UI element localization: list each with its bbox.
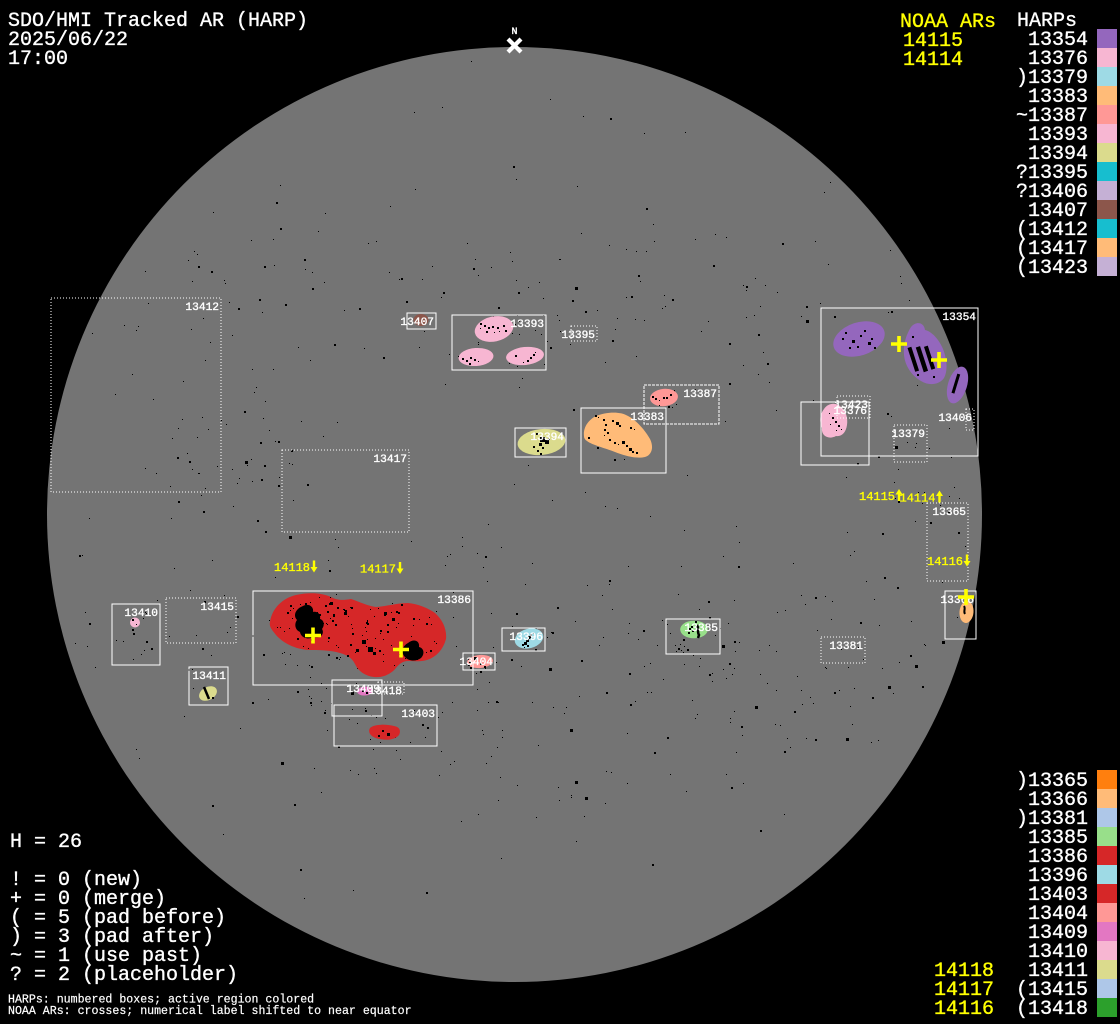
svg-text:13412: 13412 <box>185 302 219 314</box>
svg-text:13410: 13410 <box>124 608 158 620</box>
svg-text:NOAA ARs: crosses; numerical l: NOAA ARs: crosses; numerical label shift… <box>8 1005 412 1018</box>
svg-text:14115: 14115 <box>859 490 895 504</box>
svg-text:14117: 14117 <box>360 563 396 577</box>
svg-text:13365: 13365 <box>932 507 966 519</box>
svg-text:13386: 13386 <box>437 595 471 607</box>
svg-text:14116: 14116 <box>927 555 963 569</box>
svg-text:(13418: (13418 <box>1016 998 1088 1021</box>
svg-text:13407: 13407 <box>400 317 434 329</box>
svg-text:13383: 13383 <box>630 412 664 424</box>
svg-text:14114: 14114 <box>900 492 936 506</box>
svg-text:17:00: 17:00 <box>8 48 68 71</box>
svg-text:(13423: (13423 <box>1016 257 1088 280</box>
svg-text:? = 2 (placeholder): ? = 2 (placeholder) <box>10 964 238 987</box>
svg-text:13411: 13411 <box>192 671 226 683</box>
svg-text:N: N <box>511 27 517 38</box>
svg-text:13403: 13403 <box>401 709 435 721</box>
svg-text:13395: 13395 <box>561 330 595 342</box>
svg-text:13406: 13406 <box>938 413 972 425</box>
svg-text:13387: 13387 <box>683 389 717 401</box>
svg-text:13381: 13381 <box>829 641 863 653</box>
svg-text:14114: 14114 <box>903 49 963 72</box>
svg-text:14116: 14116 <box>934 998 994 1021</box>
svg-text:13418: 13418 <box>368 686 402 698</box>
svg-text:13385: 13385 <box>684 623 718 635</box>
svg-text:13379: 13379 <box>891 429 925 441</box>
svg-text:13376: 13376 <box>833 406 867 418</box>
svg-text:13396: 13396 <box>509 632 543 644</box>
svg-text:13415: 13415 <box>200 602 234 614</box>
svg-text:13394: 13394 <box>530 432 564 444</box>
svg-text:13393: 13393 <box>510 319 544 331</box>
svg-text:14118: 14118 <box>274 561 310 575</box>
svg-text:13354: 13354 <box>942 312 976 324</box>
svg-text:H = 26: H = 26 <box>10 831 82 854</box>
svg-text:13417: 13417 <box>373 454 407 466</box>
svg-text:13404: 13404 <box>459 657 493 669</box>
